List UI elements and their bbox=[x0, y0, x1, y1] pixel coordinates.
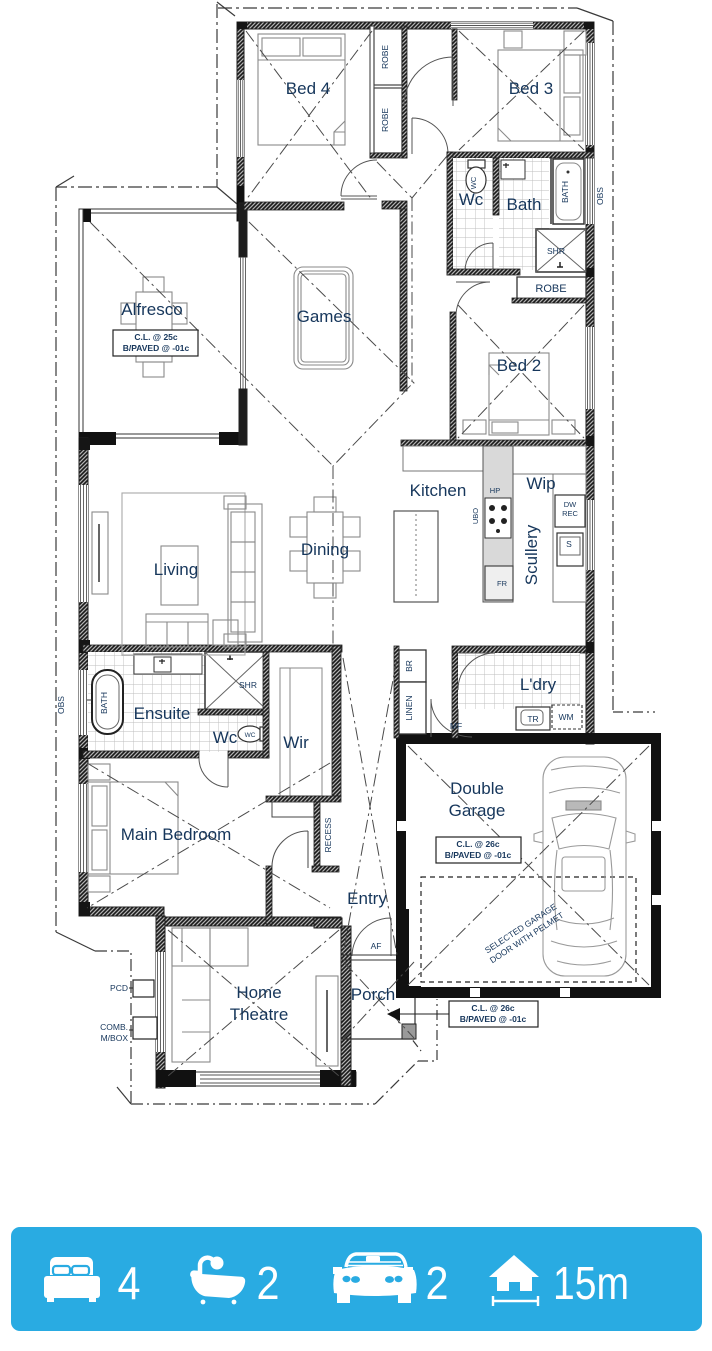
svg-text:SHR: SHR bbox=[547, 246, 565, 256]
svg-text:BATH: BATH bbox=[99, 692, 109, 714]
svg-text:BATH: BATH bbox=[560, 181, 570, 203]
svg-text:C.L. @ 26c: C.L. @ 26c bbox=[456, 839, 500, 849]
svg-text:LINEN: LINEN bbox=[404, 695, 414, 720]
svg-text:BR: BR bbox=[404, 660, 414, 672]
svg-text:M/BOX: M/BOX bbox=[101, 1033, 129, 1043]
svg-text:S: S bbox=[566, 539, 572, 549]
svg-text:4: 4 bbox=[118, 1257, 141, 1309]
svg-text:Wc: Wc bbox=[213, 728, 238, 747]
svg-text:DW: DW bbox=[564, 500, 577, 509]
svg-text:WC: WC bbox=[245, 732, 256, 739]
svg-text:Main Bedroom: Main Bedroom bbox=[121, 825, 232, 844]
svg-text:C.L. @ 26c: C.L. @ 26c bbox=[471, 1003, 515, 1013]
svg-text:Living: Living bbox=[154, 560, 198, 579]
svg-text:Wc: Wc bbox=[459, 190, 484, 209]
svg-text:Entry: Entry bbox=[347, 889, 387, 908]
svg-text:Games: Games bbox=[297, 307, 352, 326]
svg-text:HP: HP bbox=[490, 486, 500, 495]
svg-text:PCD: PCD bbox=[110, 983, 128, 993]
svg-text:L'dry: L'dry bbox=[520, 675, 557, 694]
svg-text:Scullery: Scullery bbox=[522, 524, 541, 585]
svg-text:ROBE: ROBE bbox=[380, 108, 390, 132]
svg-text:Theatre: Theatre bbox=[230, 1005, 289, 1024]
svg-text:Double: Double bbox=[450, 779, 504, 798]
svg-text:ROBE: ROBE bbox=[535, 283, 566, 295]
svg-text:RECESS: RECESS bbox=[323, 817, 333, 852]
svg-text:Ensuite: Ensuite bbox=[134, 704, 191, 723]
svg-text:UBO: UBO bbox=[471, 508, 480, 524]
svg-text:MF: MF bbox=[450, 721, 462, 731]
svg-text:COMB.: COMB. bbox=[100, 1022, 128, 1032]
svg-text:Kitchen: Kitchen bbox=[410, 481, 467, 500]
svg-text:Porch: Porch bbox=[351, 985, 395, 1004]
svg-text:ROBE: ROBE bbox=[380, 45, 390, 69]
svg-text:OBS: OBS bbox=[56, 696, 66, 714]
svg-text:B/PAVED @ -01c: B/PAVED @ -01c bbox=[460, 1014, 527, 1024]
svg-text:Bed 4: Bed 4 bbox=[286, 79, 330, 98]
svg-text:REC: REC bbox=[562, 509, 578, 518]
svg-text:Bath: Bath bbox=[507, 195, 542, 214]
svg-text:2: 2 bbox=[426, 1257, 449, 1309]
svg-text:B/PAVED @ -01c: B/PAVED @ -01c bbox=[445, 850, 512, 860]
svg-text:Bed 3: Bed 3 bbox=[509, 79, 553, 98]
svg-text:15m: 15m bbox=[553, 1257, 629, 1309]
svg-text:Garage: Garage bbox=[449, 801, 506, 820]
svg-text:OBS: OBS bbox=[595, 187, 605, 205]
svg-text:TR: TR bbox=[527, 714, 538, 724]
svg-text:Home: Home bbox=[236, 983, 281, 1002]
svg-text:WM: WM bbox=[558, 712, 573, 722]
svg-text:B/PAVED @ -01c: B/PAVED @ -01c bbox=[123, 343, 190, 353]
svg-text:FR: FR bbox=[497, 579, 508, 588]
svg-text:C.L. @ 25c: C.L. @ 25c bbox=[134, 332, 178, 342]
svg-text:AF: AF bbox=[371, 941, 382, 951]
svg-text:Wip: Wip bbox=[526, 474, 555, 493]
svg-text:Alfresco: Alfresco bbox=[121, 300, 182, 319]
svg-text:Wir: Wir bbox=[283, 733, 309, 752]
svg-text:Dining: Dining bbox=[301, 540, 349, 559]
svg-text:WC: WC bbox=[469, 176, 478, 189]
svg-text:2: 2 bbox=[257, 1257, 280, 1309]
svg-text:Bed 2: Bed 2 bbox=[497, 356, 541, 375]
svg-text:SHR: SHR bbox=[239, 680, 257, 690]
